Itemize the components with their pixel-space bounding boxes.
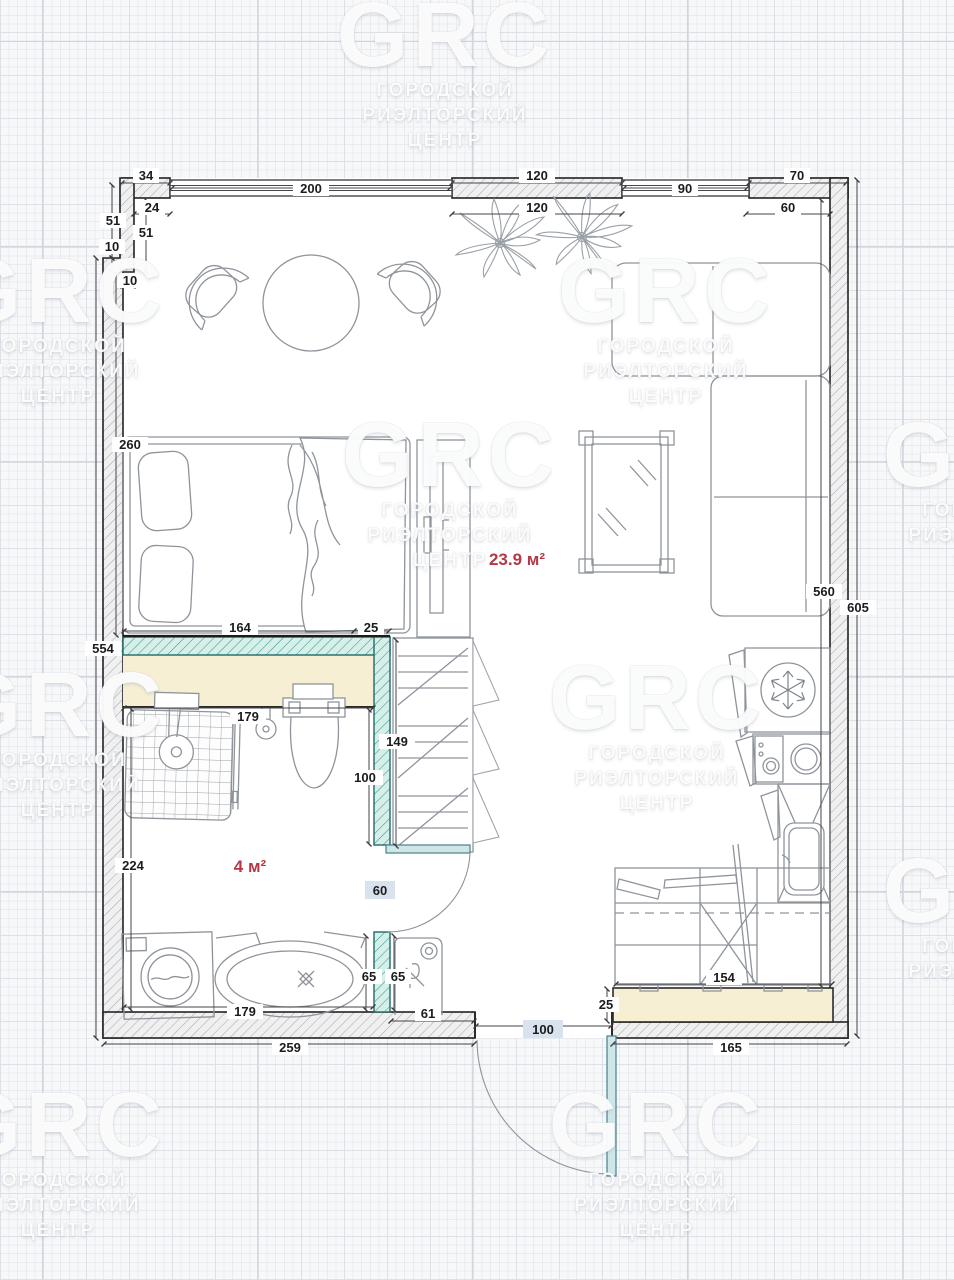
svg-text:61: 61 <box>421 1006 435 1021</box>
dim-label: 605 <box>840 600 876 615</box>
partition-horizontal <box>123 637 390 655</box>
dim-label: 154 <box>706 970 742 985</box>
svg-text:51: 51 <box>139 225 153 240</box>
dim-label-door: 60 <box>365 881 395 899</box>
dim-label: 60 <box>775 200 801 215</box>
svg-text:179: 179 <box>234 1004 256 1019</box>
dim-label: 61 <box>415 1006 441 1021</box>
dim-label: 554 <box>85 641 121 656</box>
entry-door-swing <box>477 1040 607 1174</box>
svg-text:10: 10 <box>123 273 137 288</box>
dim-label: 10 <box>99 239 125 254</box>
dim-label: 100 <box>347 770 383 785</box>
svg-text:65: 65 <box>362 969 376 984</box>
dim-label: 259 <box>272 1040 308 1055</box>
dim-label: 120 <box>519 200 555 215</box>
dim-label: 65 <box>385 969 411 984</box>
svg-text:51: 51 <box>106 213 120 228</box>
dim-label: 260 <box>112 437 148 452</box>
dim-label: 65 <box>356 969 382 984</box>
svg-text:25: 25 <box>364 620 378 635</box>
dim-label: 90 <box>672 181 698 196</box>
svg-text:100: 100 <box>532 1022 554 1037</box>
dim-label: 179 <box>230 709 266 724</box>
dim-label: 120 <box>519 168 555 183</box>
dim-label: 25 <box>593 997 619 1012</box>
dim-label: 10 <box>117 273 143 288</box>
svg-text:120: 120 <box>526 168 548 183</box>
dim-label: 179 <box>227 1004 263 1019</box>
svg-text:70: 70 <box>790 168 804 183</box>
dim-label: 560 <box>806 584 842 599</box>
dim-label: 149 <box>379 734 415 749</box>
apartment-floor <box>103 178 848 1038</box>
svg-text:25: 25 <box>599 997 613 1012</box>
svg-text:60: 60 <box>781 200 795 215</box>
dim-label: 51 <box>100 213 126 228</box>
svg-text:165: 165 <box>720 1040 742 1055</box>
svg-text:34: 34 <box>139 168 154 183</box>
floor-plan-svg: 34 200 120 90 70 24 120 60 51 10 51 10 2… <box>0 0 954 1280</box>
svg-text:164: 164 <box>229 620 251 635</box>
pillow-bottom <box>138 545 194 624</box>
svg-text:100: 100 <box>354 770 376 785</box>
dim-label-door: 100 <box>523 1020 563 1038</box>
bathroom-area-label: 4 м² <box>234 857 267 876</box>
living-room-area-label: 23.9 м² <box>489 550 545 569</box>
svg-text:154: 154 <box>713 970 735 985</box>
svg-text:560: 560 <box>813 584 835 599</box>
dim-label: 164 <box>222 620 258 635</box>
dim-label: 224 <box>115 858 151 873</box>
dim-label: 165 <box>713 1040 749 1055</box>
svg-text:179: 179 <box>237 709 259 724</box>
bathroom-door-leaf <box>386 845 470 853</box>
svg-text:260: 260 <box>119 437 141 452</box>
dim-label: 51 <box>133 225 159 240</box>
svg-text:149: 149 <box>386 734 408 749</box>
svg-text:200: 200 <box>300 181 322 196</box>
dim-label: 25 <box>358 620 384 635</box>
svg-text:90: 90 <box>678 181 692 196</box>
svg-text:60: 60 <box>373 883 387 898</box>
svg-text:554: 554 <box>92 641 114 656</box>
dim-label: 24 <box>139 200 165 215</box>
kitchen-ledge-zone <box>613 988 833 1022</box>
svg-text:24: 24 <box>145 200 160 215</box>
svg-text:120: 120 <box>526 200 548 215</box>
entry-door-leaf <box>607 1036 616 1176</box>
pillow-top <box>137 450 192 531</box>
svg-text:259: 259 <box>279 1040 301 1055</box>
dim-label: 34 <box>133 168 159 183</box>
dim-label: 70 <box>784 168 810 183</box>
dim-label: 200 <box>293 181 329 196</box>
svg-text:605: 605 <box>847 600 869 615</box>
svg-text:224: 224 <box>122 858 144 873</box>
svg-text:10: 10 <box>105 239 119 254</box>
svg-text:65: 65 <box>391 969 405 984</box>
